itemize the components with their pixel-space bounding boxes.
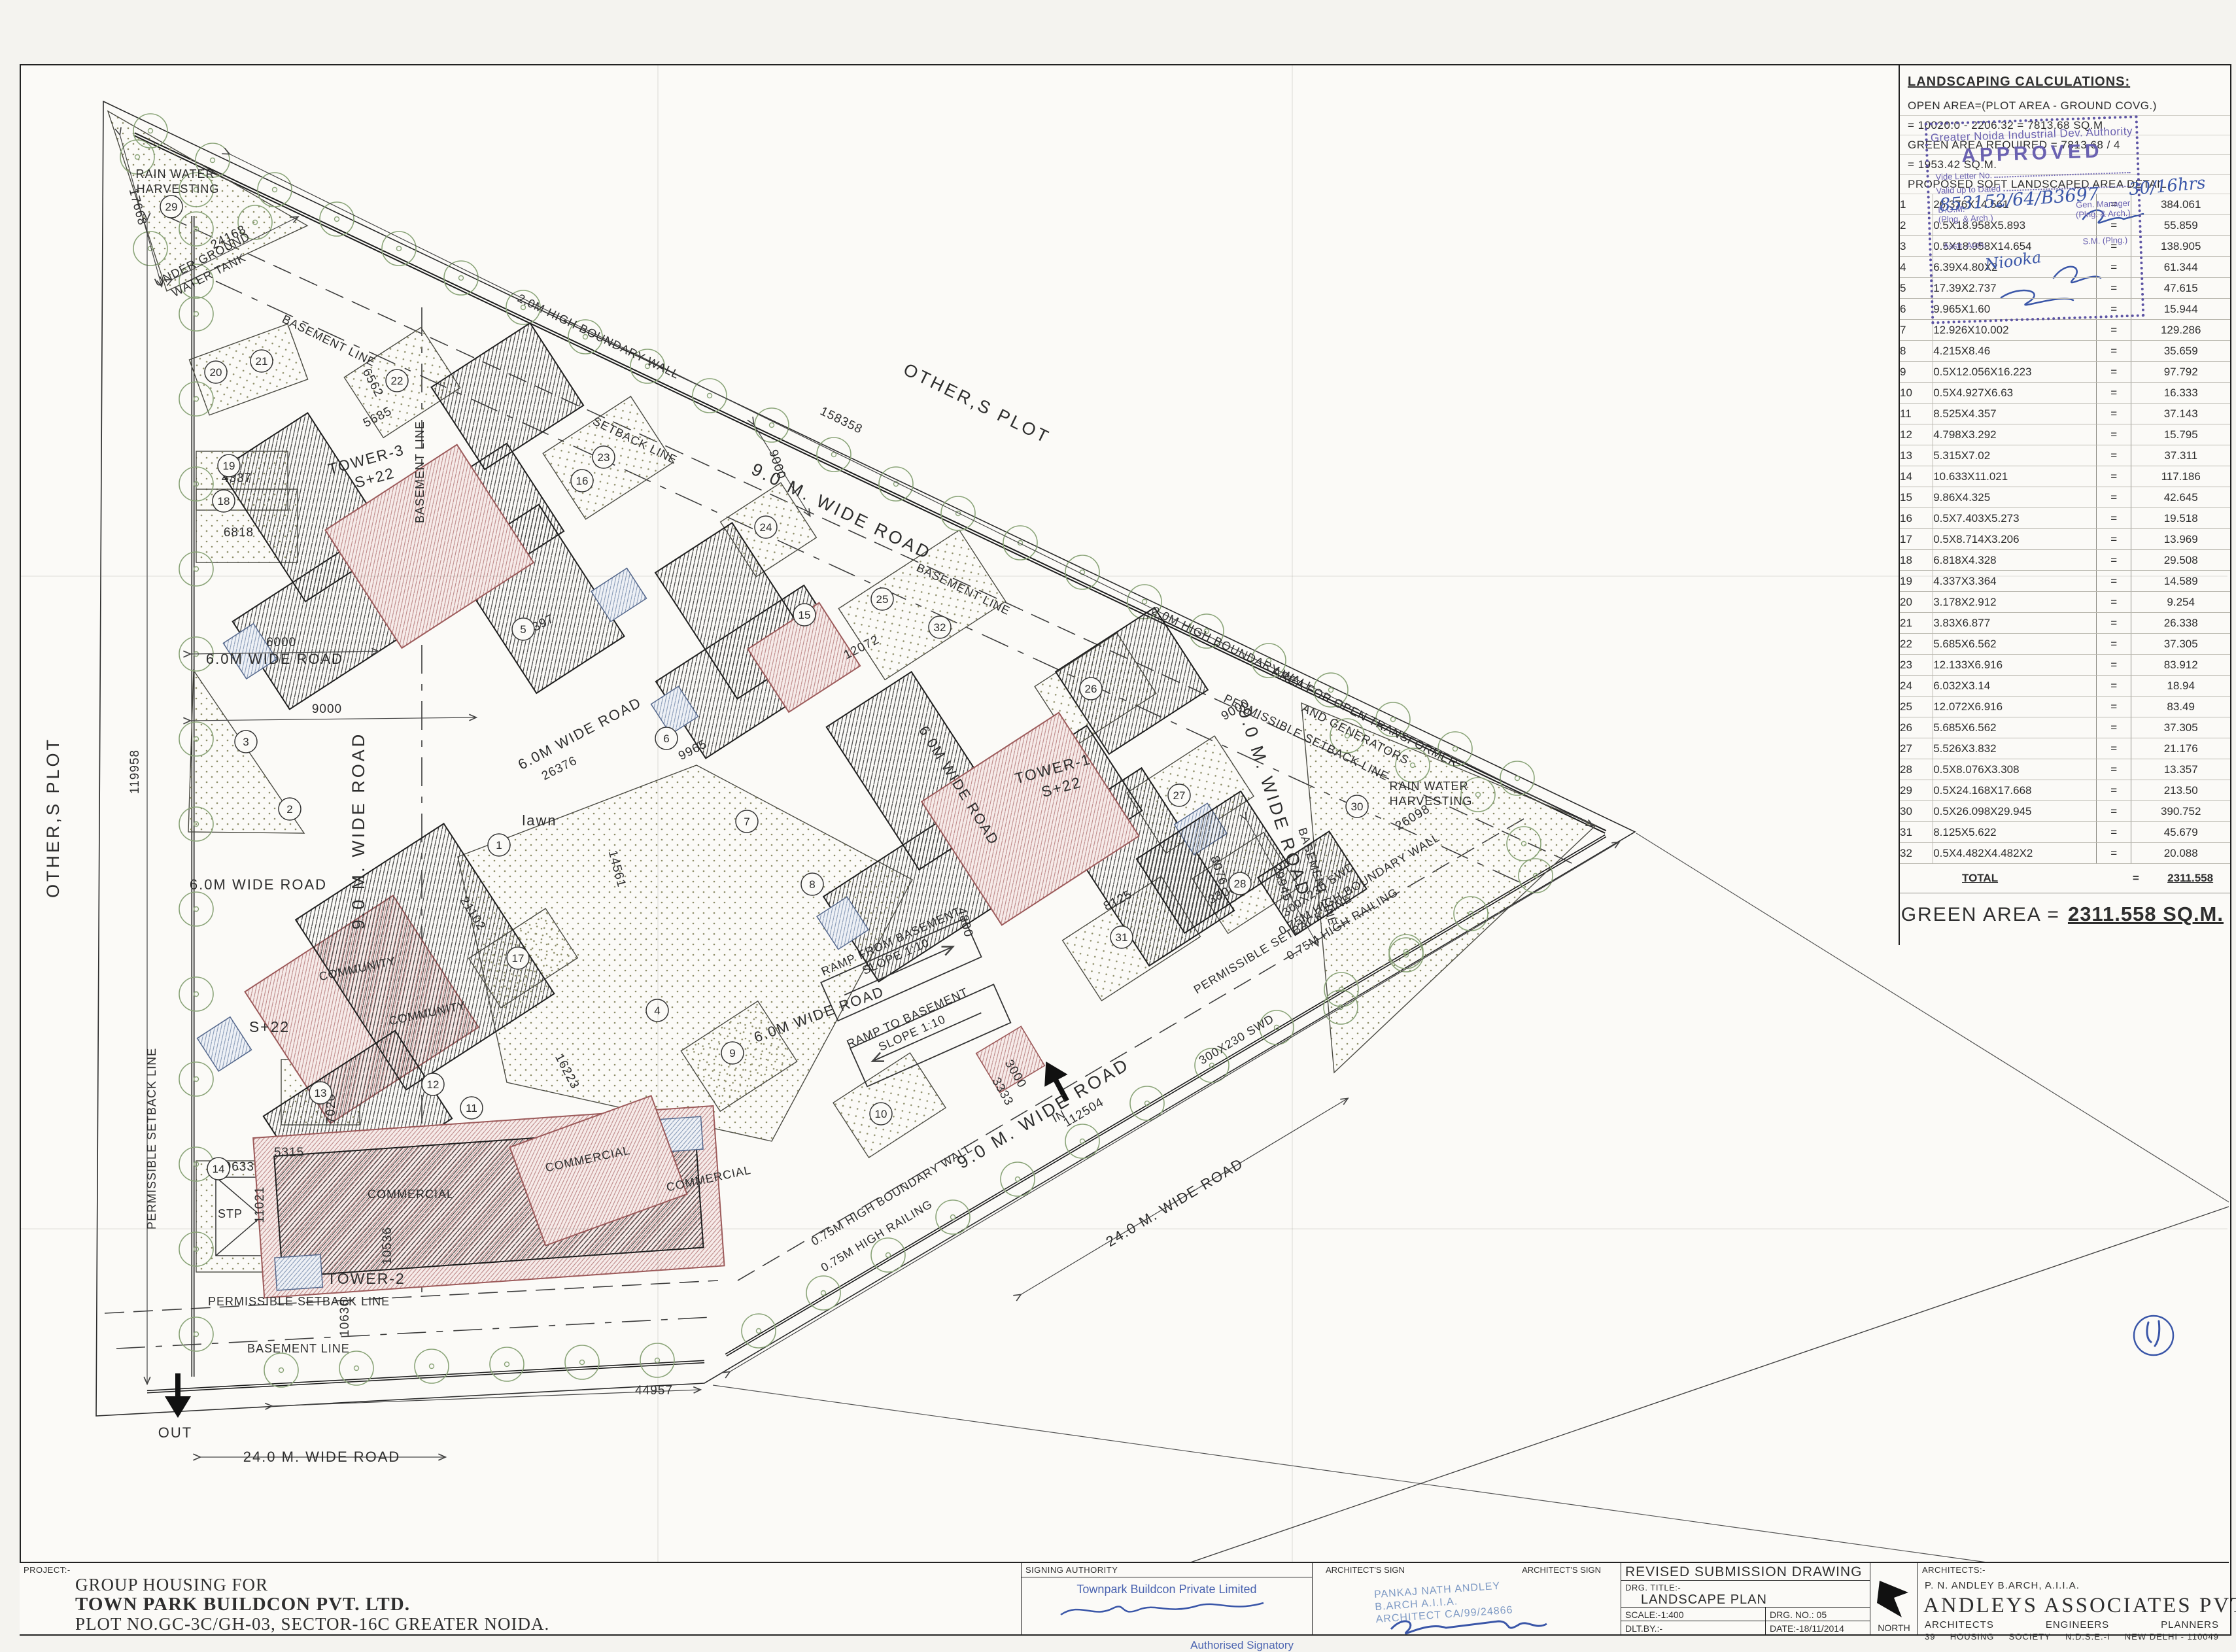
north-arrow-icon bbox=[1874, 1577, 1914, 1623]
svg-text:9965: 9965 bbox=[676, 737, 710, 763]
table-row: 9 0.5X12.056X16.223 = 97.792 bbox=[1900, 362, 2230, 383]
drawing-title: LANDSCAPE PLAN bbox=[1641, 1592, 1870, 1608]
row-number: 22 bbox=[1900, 634, 1933, 655]
row-formula: 6.39X4.80X2 bbox=[1933, 257, 2097, 278]
signing-header: SIGNING AUTHORITY bbox=[1022, 1563, 1312, 1577]
table-row: 17 0.5X8.714X3.206 = 13.969 bbox=[1900, 529, 2230, 550]
table-row: 16 0.5X7.403X5.273 = 19.518 bbox=[1900, 508, 2230, 529]
row-number: 4 bbox=[1900, 257, 1933, 278]
calc-green-required: GREEN AREA REQUIRED = 7813.68 / 4 bbox=[1900, 135, 2230, 155]
row-number: 3 bbox=[1900, 236, 1933, 257]
row-value: 15.944 bbox=[2131, 299, 2230, 320]
row-value: 37.305 bbox=[2131, 634, 2230, 655]
row-value: 13.969 bbox=[2131, 529, 2230, 550]
row-equals: = bbox=[2097, 801, 2131, 822]
svg-text:11021: 11021 bbox=[253, 1186, 267, 1223]
row-equals: = bbox=[2097, 487, 2131, 508]
commercial-label: COMMERCIAL bbox=[368, 1188, 454, 1201]
row-equals: = bbox=[2097, 676, 2131, 697]
drawing-date: DATE:-18/11/2014 bbox=[1766, 1621, 1870, 1635]
row-formula: 12.926X10.002 bbox=[1933, 320, 2097, 341]
row-number: 1 bbox=[1900, 194, 1933, 215]
row-equals: = bbox=[2097, 278, 2131, 299]
svg-text:9000: 9000 bbox=[312, 702, 342, 716]
row-formula: 0.5X24.168X17.668 bbox=[1933, 780, 2097, 801]
svg-text:119958: 119958 bbox=[128, 749, 142, 794]
row-value: 9.254 bbox=[2131, 592, 2230, 613]
out-label: OUT bbox=[158, 1424, 192, 1441]
svg-text:9: 9 bbox=[729, 1047, 735, 1059]
row-number: 13 bbox=[1900, 445, 1933, 466]
total-label: TOTAL bbox=[1900, 872, 2122, 885]
svg-text:5: 5 bbox=[520, 623, 526, 636]
table-row: 5 17.39X2.737 = 47.615 bbox=[1900, 278, 2230, 299]
row-formula: 5.685X6.562 bbox=[1933, 717, 2097, 738]
row-equals: = bbox=[2097, 236, 2131, 257]
table-row: 18 6.818X4.328 = 29.508 bbox=[1900, 550, 2230, 571]
row-value: 61.344 bbox=[2131, 257, 2230, 278]
row-formula: 0.5X4.927X6.63 bbox=[1933, 383, 2097, 404]
row-formula: 12.133X6.916 bbox=[1933, 655, 2097, 676]
rainwater-label: RAIN WATER bbox=[136, 167, 215, 181]
svg-text:13: 13 bbox=[315, 1087, 327, 1099]
row-value: 213.50 bbox=[2131, 780, 2230, 801]
row-formula: 5.315X7.02 bbox=[1933, 445, 2097, 466]
row-number: 30 bbox=[1900, 801, 1933, 822]
row-equals: = bbox=[2097, 843, 2131, 864]
calc-title: LANDSCAPING CALCULATIONS: bbox=[1900, 65, 2230, 96]
drawing-info-cell: REVISED SUBMISSION DRAWING DRG. TITLE:- … bbox=[1621, 1563, 1870, 1634]
svg-text:44957: 44957 bbox=[635, 1384, 673, 1398]
road-label: 6.0M WIDE ROAD bbox=[190, 876, 327, 893]
table-row: 11 8.525X4.357 = 37.143 bbox=[1900, 404, 2230, 424]
row-number: 11 bbox=[1900, 404, 1933, 424]
row-equals: = bbox=[2097, 822, 2131, 843]
row-equals: = bbox=[2097, 780, 2131, 801]
architects-label: ARCHITECTS:- bbox=[1918, 1563, 2228, 1575]
row-equals: = bbox=[2097, 571, 2131, 592]
table-row: 23 12.133X6.916 = 83.912 bbox=[1900, 655, 2230, 676]
row-number: 32 bbox=[1900, 843, 1933, 864]
total-row: TOTAL = 2311.558 bbox=[1900, 864, 2230, 893]
table-row: 4 6.39X4.80X2 = 61.344 bbox=[1900, 257, 2230, 278]
table-row: 2 0.5X18.958X5.893 = 55.859 bbox=[1900, 215, 2230, 236]
row-formula: 4.215X8.46 bbox=[1933, 341, 2097, 362]
project-line-3: PLOT NO.GC-3C/GH-03, SECTOR-16C GREATER … bbox=[75, 1614, 1021, 1634]
table-row: 3 0.5X18.958X14.654 = 138.905 bbox=[1900, 236, 2230, 257]
road-label: 9.0 M. WIDE ROAD bbox=[954, 1054, 1133, 1173]
table-row: 26 5.685X6.562 = 37.305 bbox=[1900, 717, 2230, 738]
svg-text:11: 11 bbox=[466, 1102, 477, 1114]
row-value: 384.061 bbox=[2131, 194, 2230, 215]
svg-text:32: 32 bbox=[934, 621, 946, 634]
row-equals: = bbox=[2097, 550, 2131, 571]
row-formula: 0.5X8.714X3.206 bbox=[1933, 529, 2097, 550]
svg-text:17: 17 bbox=[512, 952, 525, 965]
table-row: 22 5.685X6.562 = 37.305 bbox=[1900, 634, 2230, 655]
line-label: PERMISSIBLE SETBACK LINE bbox=[145, 1048, 158, 1230]
row-formula: 3.178X2.912 bbox=[1933, 592, 2097, 613]
svg-text:7: 7 bbox=[744, 816, 749, 828]
project-cell: PROJECT:- GROUP HOUSING FOR TOWN PARK BU… bbox=[20, 1563, 1022, 1634]
row-formula: 0.5X18.958X5.893 bbox=[1933, 215, 2097, 236]
row-equals: = bbox=[2097, 697, 2131, 717]
row-value: 37.311 bbox=[2131, 445, 2230, 466]
row-value: 42.645 bbox=[2131, 487, 2230, 508]
road-label: 24.0 M. WIDE ROAD bbox=[1103, 1155, 1247, 1250]
svg-text:22: 22 bbox=[391, 375, 404, 387]
svg-text:28: 28 bbox=[1234, 878, 1247, 890]
building-cluster-mid bbox=[593, 507, 861, 773]
row-number: 6 bbox=[1900, 299, 1933, 320]
row-equals: = bbox=[2097, 634, 2131, 655]
row-value: 37.305 bbox=[2131, 717, 2230, 738]
row-number: 15 bbox=[1900, 487, 1933, 508]
row-equals: = bbox=[2097, 215, 2131, 236]
row-formula: 6.032X3.14 bbox=[1933, 676, 2097, 697]
tower-label: S+22 bbox=[249, 1018, 290, 1035]
table-row: 31 8.125X5.622 = 45.679 bbox=[1900, 822, 2230, 843]
line-label: BASEMENT LINE bbox=[247, 1342, 350, 1355]
row-value: 35.659 bbox=[2131, 341, 2230, 362]
table-row: 19 4.337X3.364 = 14.589 bbox=[1900, 571, 2230, 592]
table-row: 15 9.86X4.325 = 42.645 bbox=[1900, 487, 2230, 508]
row-value: 21.176 bbox=[2131, 738, 2230, 759]
row-value: 29.508 bbox=[2131, 550, 2230, 571]
row-formula: 10.633X11.021 bbox=[1933, 466, 2097, 487]
signing-authority-cell: SIGNING AUTHORITY Townpark Buildcon Priv… bbox=[1022, 1563, 1313, 1634]
dlt-by: DLT.BY.:- bbox=[1621, 1621, 1766, 1635]
north-cell: NORTH bbox=[1870, 1563, 1918, 1634]
line-label: PERMISSIBLE SETBACK LINE bbox=[208, 1295, 390, 1308]
table-row: 1 26.376X14.561 = 384.061 bbox=[1900, 194, 2230, 215]
row-equals: = bbox=[2097, 445, 2131, 466]
rainwater-label: RAIN WATER bbox=[1390, 780, 1469, 793]
calc-open-area-formula: OPEN AREA=(PLOT AREA - GROUND COVG.) bbox=[1900, 96, 2230, 116]
row-number: 28 bbox=[1900, 759, 1933, 780]
row-equals: = bbox=[2097, 717, 2131, 738]
table-row: 14 10.633X11.021 = 117.186 bbox=[1900, 466, 2230, 487]
row-number: 29 bbox=[1900, 780, 1933, 801]
svg-text:14: 14 bbox=[213, 1163, 225, 1175]
row-value: 83.49 bbox=[2131, 697, 2230, 717]
row-number: 12 bbox=[1900, 424, 1933, 445]
svg-text:6818: 6818 bbox=[224, 526, 254, 540]
architects-cell: ARCHITECTS:- P. N. ANDLEY B.ARCH, A.I.I.… bbox=[1918, 1563, 2228, 1634]
table-row: 27 5.526X3.832 = 21.176 bbox=[1900, 738, 2230, 759]
svg-text:10536: 10536 bbox=[381, 1227, 394, 1265]
architect-sign-header: ARCHITECT'S SIGN bbox=[1326, 1565, 1405, 1575]
row-formula: 8.125X5.622 bbox=[1933, 822, 2097, 843]
green-area-value: 2311.558 SQ.M. bbox=[2068, 903, 2224, 926]
svg-text:23: 23 bbox=[598, 451, 610, 464]
tower-label: TOWER-2 bbox=[327, 1270, 405, 1287]
row-value: 37.143 bbox=[2131, 404, 2230, 424]
row-formula: 3.83X6.877 bbox=[1933, 613, 2097, 634]
table-row: 28 0.5X8.076X3.308 = 13.357 bbox=[1900, 759, 2230, 780]
row-formula: 9.965X1.60 bbox=[1933, 299, 2097, 320]
row-formula: 5.685X6.562 bbox=[1933, 634, 2097, 655]
fold-crease bbox=[21, 576, 2227, 577]
row-equals: = bbox=[2097, 592, 2131, 613]
project-label: PROJECT:- bbox=[20, 1563, 1021, 1575]
row-formula: 0.5X18.958X14.654 bbox=[1933, 236, 2097, 257]
calc-open-area-value: = 10020.0 - 2206.32 = 7813.68 SQ.M. bbox=[1900, 116, 2230, 135]
scanned-landscape-plan-sheet: { "plan": { "labels": { "others_plot": "… bbox=[0, 0, 2236, 1635]
svg-text:10636: 10636 bbox=[338, 1299, 352, 1337]
row-value: 20.088 bbox=[2131, 843, 2230, 864]
firm-disciplines: ARCHITECTSENGINEERSPLANNERS bbox=[1925, 1619, 2219, 1630]
svg-text:21: 21 bbox=[256, 355, 268, 368]
line-label: BASEMENT LINE bbox=[413, 421, 426, 523]
svg-text:10: 10 bbox=[875, 1108, 887, 1120]
row-formula: 0.5X26.098X29.945 bbox=[1933, 801, 2097, 822]
row-number: 9 bbox=[1900, 362, 1933, 383]
lawn-label: lawn bbox=[522, 812, 557, 829]
svg-text:24: 24 bbox=[760, 521, 772, 534]
drg-title-label: DRG. TITLE:- bbox=[1621, 1581, 1870, 1592]
row-equals: = bbox=[2097, 424, 2131, 445]
row-value: 117.186 bbox=[2131, 466, 2230, 487]
row-equals: = bbox=[2097, 738, 2131, 759]
svg-text:25: 25 bbox=[876, 593, 889, 606]
table-row: 8 4.215X8.46 = 35.659 bbox=[1900, 341, 2230, 362]
table-row: 10 0.5X4.927X6.63 = 16.333 bbox=[1900, 383, 2230, 404]
project-line-1: GROUP HOUSING FOR bbox=[75, 1575, 1021, 1594]
row-equals: = bbox=[2097, 383, 2131, 404]
table-row: 13 5.315X7.02 = 37.311 bbox=[1900, 445, 2230, 466]
row-formula: 26.376X14.561 bbox=[1933, 194, 2097, 215]
svg-text:26: 26 bbox=[1085, 683, 1097, 695]
row-value: 16.333 bbox=[2131, 383, 2230, 404]
row-equals: = bbox=[2097, 613, 2131, 634]
row-value: 129.286 bbox=[2131, 320, 2230, 341]
svg-text:30: 30 bbox=[1351, 800, 1364, 813]
row-value: 18.94 bbox=[2131, 676, 2230, 697]
table-row: 24 6.032X3.14 = 18.94 bbox=[1900, 676, 2230, 697]
authorised-signatory-label: Authorised Signatory bbox=[1022, 1639, 1294, 1652]
drawing-number: DRG. NO.: 05 bbox=[1766, 1608, 1870, 1621]
row-equals: = bbox=[2097, 655, 2131, 676]
authorised-signature bbox=[1022, 1596, 1313, 1623]
firm-name: ANDLEYS ASSOCIATES PVT. LTD. bbox=[1923, 1594, 2228, 1618]
table-row: 29 0.5X24.168X17.668 = 213.50 bbox=[1900, 780, 2230, 801]
row-value: 14.589 bbox=[2131, 571, 2230, 592]
title-block: PROJECT:- GROUP HOUSING FOR TOWN PARK BU… bbox=[20, 1562, 2229, 1634]
fold-crease bbox=[21, 1228, 2227, 1230]
project-line-2: TOWN PARK BUILDCON PVT. LTD. bbox=[75, 1594, 1021, 1614]
row-formula: 0.5X12.056X16.223 bbox=[1933, 362, 2097, 383]
table-row: 32 0.5X4.482X4.482X2 = 20.088 bbox=[1900, 843, 2230, 864]
row-formula: 17.39X2.737 bbox=[1933, 278, 2097, 299]
row-value: 45.679 bbox=[2131, 822, 2230, 843]
road-label: 6.0M WIDE ROAD bbox=[515, 694, 644, 773]
table-row: 25 12.072X6.916 = 83.49 bbox=[1900, 697, 2230, 717]
row-formula: 12.072X6.916 bbox=[1933, 697, 2097, 717]
svg-text:16: 16 bbox=[576, 475, 589, 487]
svg-text:8: 8 bbox=[809, 878, 815, 891]
fold-crease bbox=[657, 65, 659, 1563]
others-plot-label: OTHER,S PLOT bbox=[43, 737, 63, 898]
row-equals: = bbox=[2097, 362, 2131, 383]
total-value: 2311.558 bbox=[2150, 872, 2230, 885]
green-area-row: GREEN AREA = 2311.558 SQ.M. bbox=[1900, 893, 2230, 926]
row-number: 7 bbox=[1900, 320, 1933, 341]
table-row: 21 3.83X6.877 = 26.338 bbox=[1900, 613, 2230, 634]
calc-proposed-heading: PROPOSED SOFT LANDSCAPED AREA DETAIL bbox=[1900, 175, 2230, 194]
row-equals: = bbox=[2097, 759, 2131, 780]
table-row: 7 12.926X10.002 = 129.286 bbox=[1900, 320, 2230, 341]
svg-text:158358: 158358 bbox=[818, 404, 865, 436]
row-number: 18 bbox=[1900, 550, 1933, 571]
row-number: 8 bbox=[1900, 341, 1933, 362]
svg-text:29: 29 bbox=[165, 201, 178, 213]
row-value: 15.795 bbox=[2131, 424, 2230, 445]
row-formula: 0.5X7.403X5.273 bbox=[1933, 508, 2097, 529]
row-formula: 5.526X3.832 bbox=[1933, 738, 2097, 759]
row-number: 17 bbox=[1900, 529, 1933, 550]
row-number: 16 bbox=[1900, 508, 1933, 529]
row-value: 390.752 bbox=[2131, 801, 2230, 822]
north-label: NORTH bbox=[1878, 1623, 1910, 1634]
landscaping-calculations-table: LANDSCAPING CALCULATIONS: OPEN AREA=(PLO… bbox=[1899, 65, 2230, 945]
stp-label: STP bbox=[218, 1207, 243, 1220]
svg-text:15: 15 bbox=[799, 609, 811, 621]
road-label: 24.0 M. WIDE ROAD bbox=[243, 1449, 401, 1465]
row-number: 31 bbox=[1900, 822, 1933, 843]
row-value: 26.338 bbox=[2131, 613, 2230, 634]
svg-text:6: 6 bbox=[663, 732, 669, 745]
road-label: 6.0M WIDE ROAD bbox=[206, 651, 343, 667]
svg-text:20: 20 bbox=[210, 366, 222, 379]
row-formula: 9.86X4.325 bbox=[1933, 487, 2097, 508]
row-number: 20 bbox=[1900, 592, 1933, 613]
row-equals: = bbox=[2097, 508, 2131, 529]
total-equals: = bbox=[2122, 872, 2151, 885]
calc-green-required-value: = 1953.42 SQ.M. bbox=[1900, 155, 2230, 175]
row-formula: 8.525X4.357 bbox=[1933, 404, 2097, 424]
row-number: 10 bbox=[1900, 383, 1933, 404]
row-value: 13.357 bbox=[2131, 759, 2230, 780]
green-area-label: GREEN AREA = bbox=[1901, 904, 2060, 926]
row-value: 55.859 bbox=[2131, 215, 2230, 236]
row-value: 19.518 bbox=[2131, 508, 2230, 529]
architect-name: P. N. ANDLEY B.ARCH, A.I.I.A. bbox=[1925, 1580, 2228, 1591]
row-number: 19 bbox=[1900, 571, 1933, 592]
svg-text:27: 27 bbox=[1173, 789, 1186, 802]
rainwater-label: HARVESTING bbox=[1390, 795, 1473, 808]
svg-text:12: 12 bbox=[427, 1078, 439, 1091]
revised-submission-label: REVISED SUBMISSION DRAWING bbox=[1621, 1563, 1870, 1581]
row-number: 23 bbox=[1900, 655, 1933, 676]
row-number: 21 bbox=[1900, 613, 1933, 634]
row-formula: 0.5X4.482X4.482X2 bbox=[1933, 843, 2097, 864]
row-value: 83.912 bbox=[2131, 655, 2230, 676]
row-number: 14 bbox=[1900, 466, 1933, 487]
signing-company-stamp: Townpark Buildcon Private Limited bbox=[1022, 1583, 1312, 1596]
row-value: 138.905 bbox=[2131, 236, 2230, 257]
svg-text:31: 31 bbox=[1116, 931, 1128, 944]
row-number: 2 bbox=[1900, 215, 1933, 236]
svg-text:6000: 6000 bbox=[266, 636, 296, 649]
row-formula: 4.798X3.292 bbox=[1933, 424, 2097, 445]
row-equals: = bbox=[2097, 194, 2131, 215]
firm-address: 39HOUSINGSOCIETYN.D.S.E.-INEW DELHI - 11… bbox=[1925, 1632, 2219, 1642]
row-number: 25 bbox=[1900, 697, 1933, 717]
table-row: 20 3.178X2.912 = 9.254 bbox=[1900, 592, 2230, 613]
calc-rows-table: 1 26.376X14.561 = 384.061 2 0.5X18.958X5… bbox=[1900, 194, 2230, 864]
row-number: 24 bbox=[1900, 676, 1933, 697]
row-number: 5 bbox=[1900, 278, 1933, 299]
row-equals: = bbox=[2097, 466, 2131, 487]
row-equals: = bbox=[2097, 257, 2131, 278]
row-formula: 0.5X8.076X3.308 bbox=[1933, 759, 2097, 780]
svg-text:3: 3 bbox=[243, 736, 249, 748]
row-equals: = bbox=[2097, 529, 2131, 550]
table-row: 12 4.798X3.292 = 15.795 bbox=[1900, 424, 2230, 445]
row-number: 27 bbox=[1900, 738, 1933, 759]
scale-value: SCALE:-1:400 bbox=[1621, 1608, 1766, 1621]
svg-text:5315: 5315 bbox=[274, 1146, 304, 1160]
row-number: 26 bbox=[1900, 717, 1933, 738]
table-row: 6 9.965X1.60 = 15.944 bbox=[1900, 299, 2230, 320]
fold-crease bbox=[1292, 65, 1293, 1563]
row-equals: = bbox=[2097, 341, 2131, 362]
row-formula: 4.337X3.364 bbox=[1933, 571, 2097, 592]
svg-text:18: 18 bbox=[218, 495, 230, 508]
row-equals: = bbox=[2097, 320, 2131, 341]
row-formula: 6.818X4.328 bbox=[1933, 550, 2097, 571]
road-label: 9.0 M. WIDE ROAD bbox=[349, 732, 368, 930]
row-value: 47.615 bbox=[2131, 278, 2230, 299]
svg-text:2: 2 bbox=[286, 803, 292, 816]
row-equals: = bbox=[2097, 404, 2131, 424]
rainwater-label: HARVESTING bbox=[137, 182, 220, 196]
row-equals: = bbox=[2097, 299, 2131, 320]
table-row: 30 0.5X26.098X29.945 = 390.752 bbox=[1900, 801, 2230, 822]
svg-text:19: 19 bbox=[223, 460, 235, 472]
svg-text:1: 1 bbox=[496, 839, 502, 852]
row-value: 97.792 bbox=[2131, 362, 2230, 383]
others-plot-label: OTHER,S PLOT bbox=[901, 360, 1054, 448]
architect-sign-cell: ARCHITECT'S SIGN ARCHITECT'S SIGN PANKAJ… bbox=[1313, 1563, 1621, 1634]
